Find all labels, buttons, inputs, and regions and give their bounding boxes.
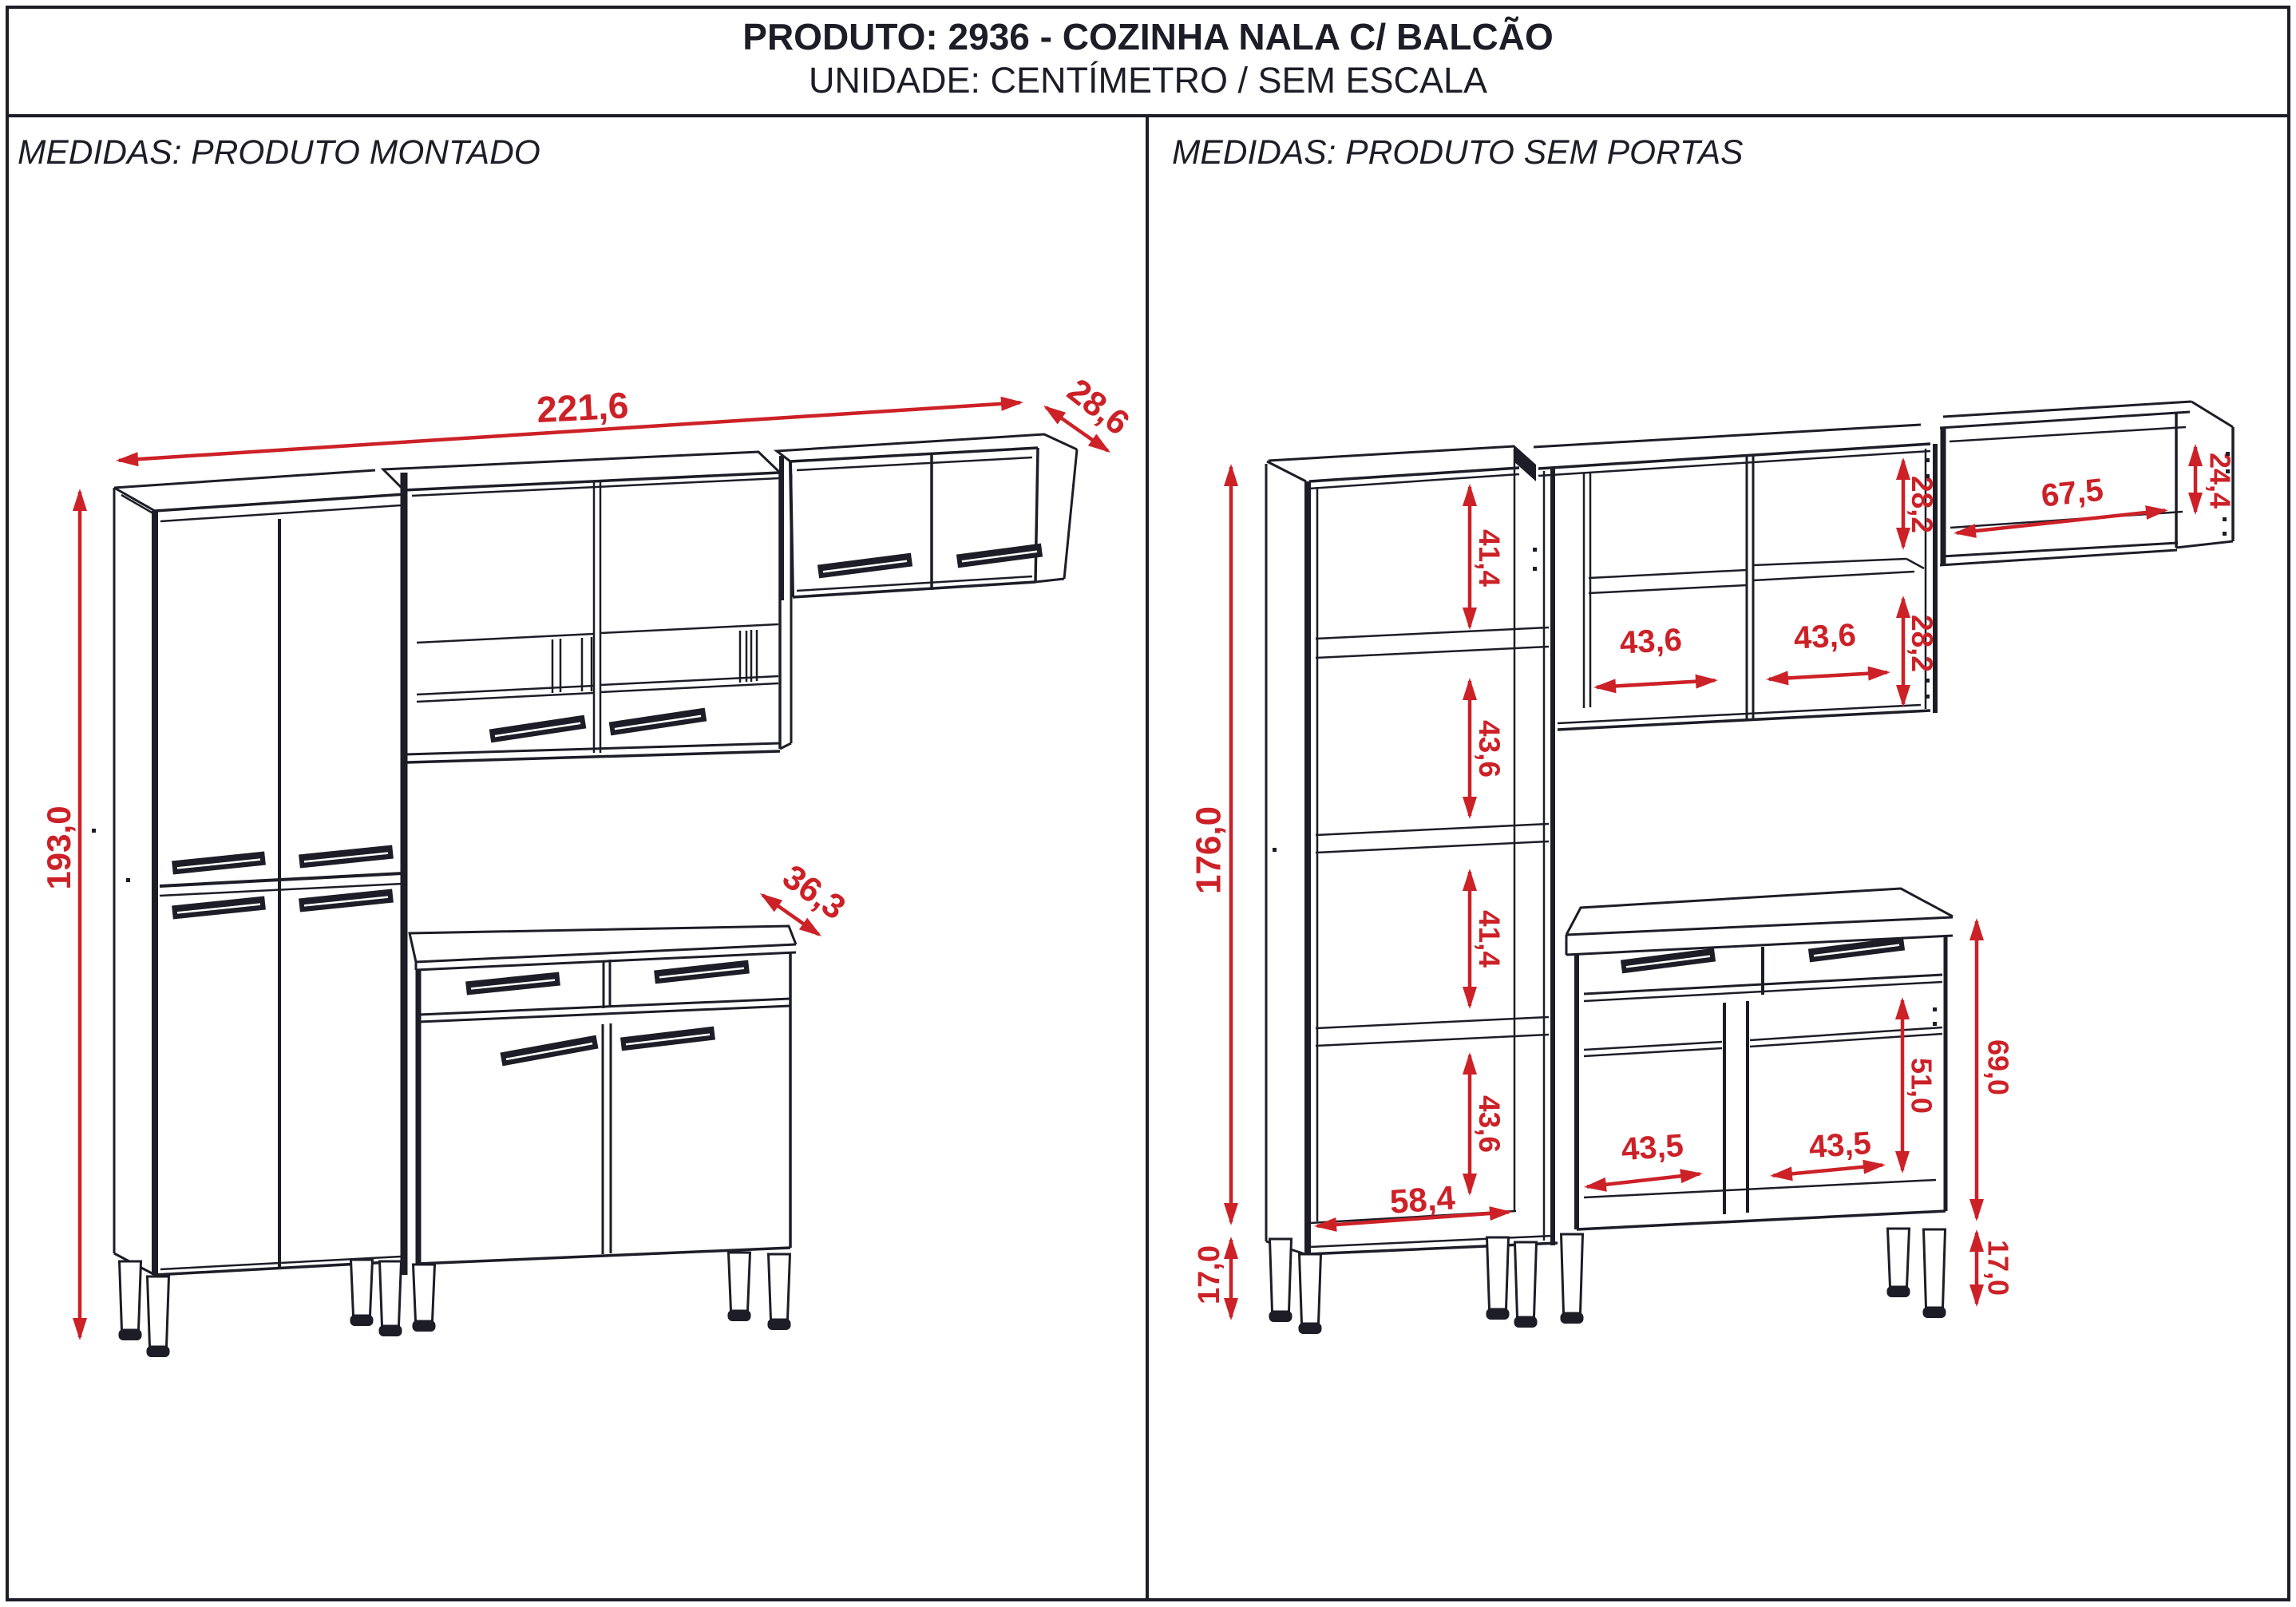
svg-text:PRODUTO: 2936 - COZINHA NALA C: PRODUTO: 2936 - COZINHA NALA C/ BALCÃO <box>742 16 1553 57</box>
svg-text:24,4: 24,4 <box>2203 453 2236 509</box>
svg-text:58,4: 58,4 <box>1388 1178 1456 1221</box>
svg-text:43,6: 43,6 <box>1473 1095 1506 1153</box>
svg-text:MEDIDAS: PRODUTO SEM PORTAS: MEDIDAS: PRODUTO SEM PORTAS <box>1172 134 1744 172</box>
svg-text:43,6: 43,6 <box>1619 623 1683 661</box>
svg-text:43,6: 43,6 <box>1793 618 1857 656</box>
svg-text:69,0: 69,0 <box>1981 1039 2014 1095</box>
svg-text:UNIDADE: CENTÍMETRO / SEM ESCA: UNIDADE: CENTÍMETRO / SEM ESCALA <box>809 60 1487 101</box>
svg-text:51,0: 51,0 <box>1905 1058 1938 1114</box>
svg-text:43,5: 43,5 <box>1620 1128 1684 1167</box>
svg-text:28,2: 28,2 <box>1906 615 1938 672</box>
svg-text:17,0: 17,0 <box>1193 1245 1226 1304</box>
svg-text:43,6: 43,6 <box>1473 720 1506 778</box>
svg-text:193,0: 193,0 <box>40 805 77 889</box>
svg-text:43,5: 43,5 <box>1807 1126 1872 1165</box>
svg-text:221,6: 221,6 <box>536 384 630 430</box>
svg-text:41,4: 41,4 <box>1473 910 1506 968</box>
svg-text:28,2: 28,2 <box>1906 476 1938 533</box>
svg-text:41,4: 41,4 <box>1473 529 1506 587</box>
svg-text:67,5: 67,5 <box>2040 473 2105 514</box>
svg-text:MEDIDAS: PRODUTO MONTADO: MEDIDAS: PRODUTO MONTADO <box>18 134 540 172</box>
svg-text:17,0: 17,0 <box>1981 1240 2014 1296</box>
svg-text:176,0: 176,0 <box>1190 806 1229 894</box>
